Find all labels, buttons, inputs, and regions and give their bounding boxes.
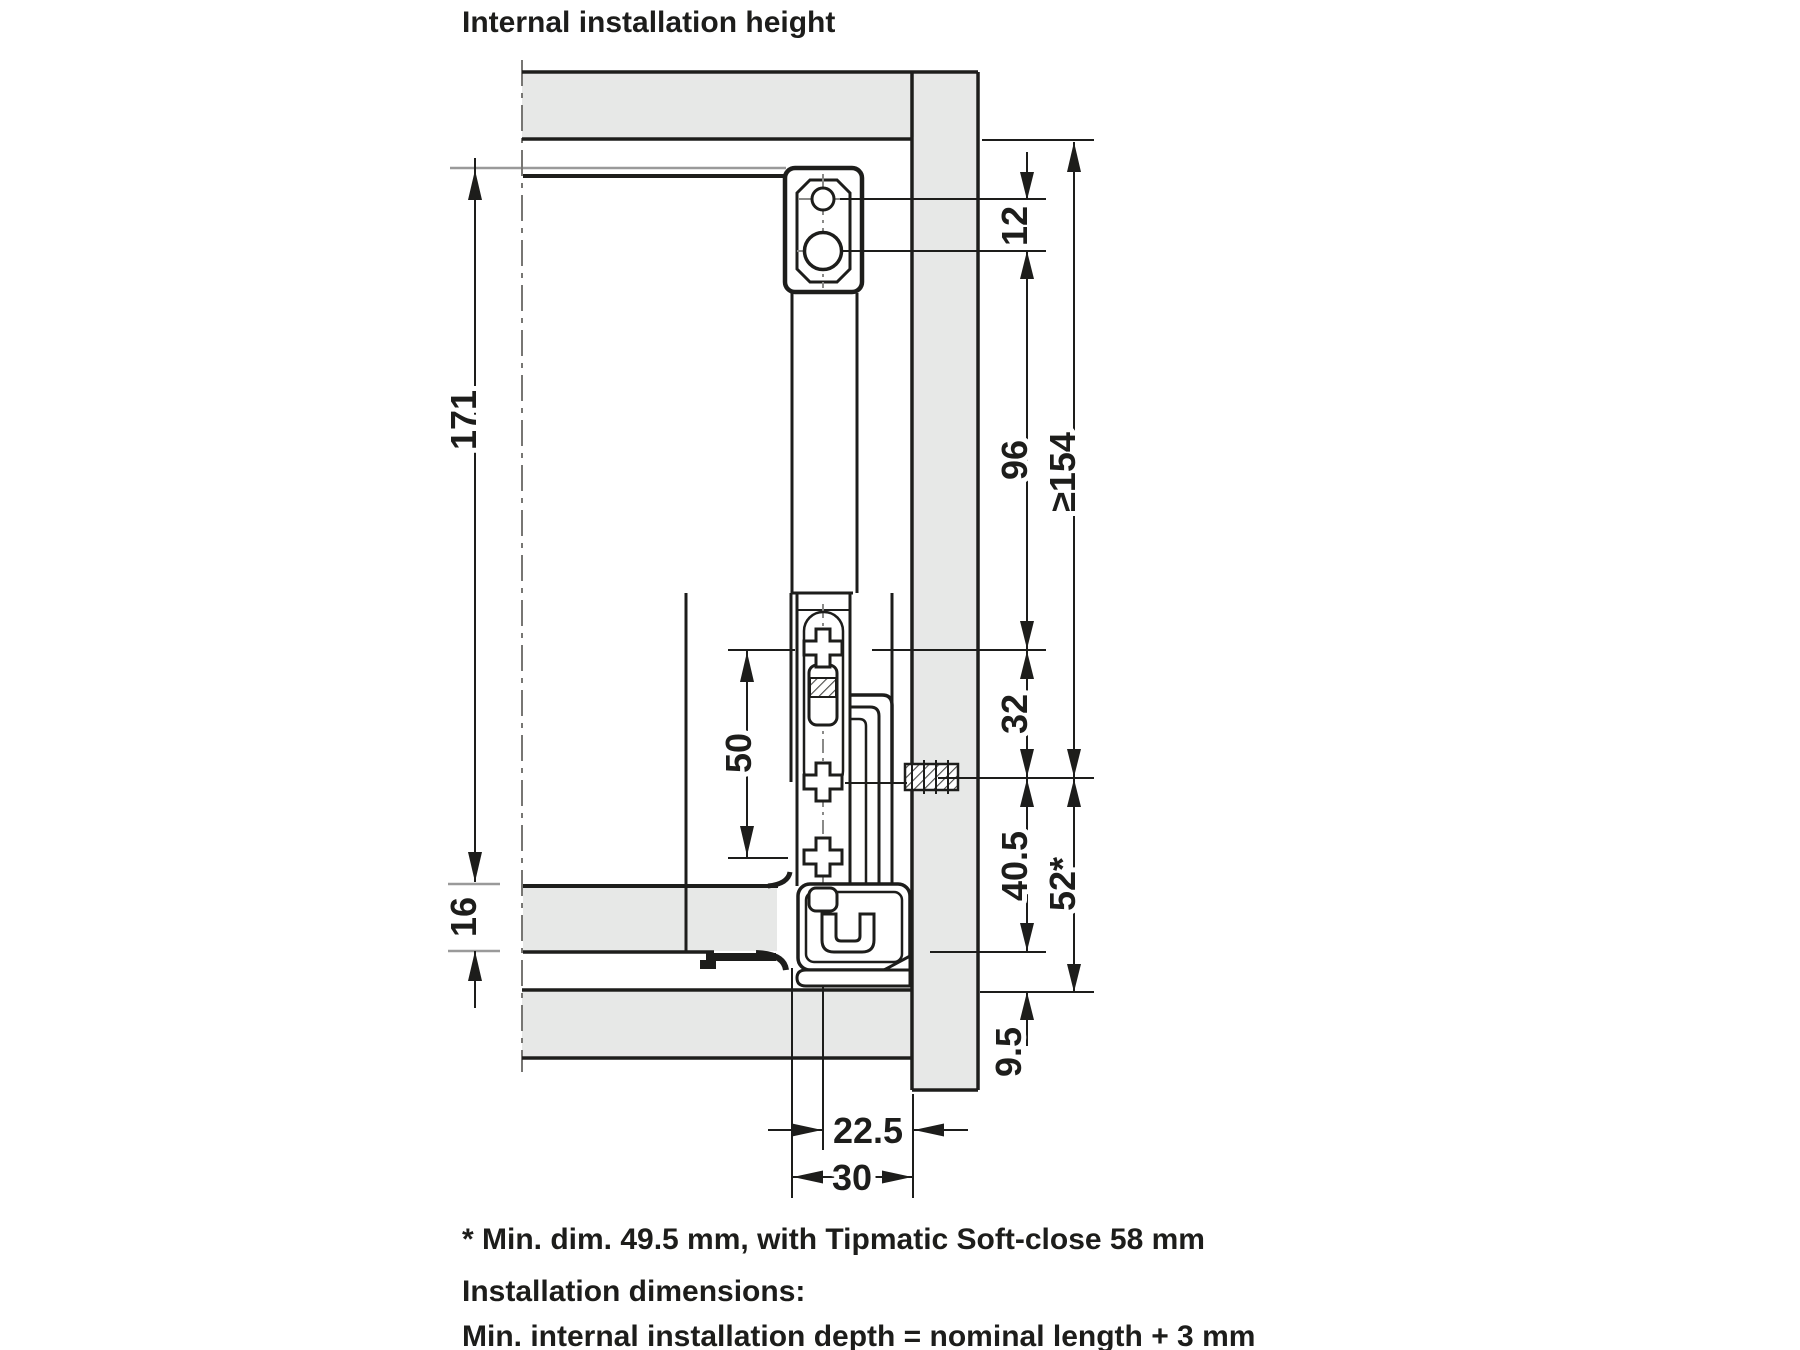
installation-drawing: Internal installation height	[0, 0, 1800, 1350]
cross-hole-bottom	[804, 838, 842, 876]
arrow-95-bottom	[1020, 992, 1034, 1020]
arrow-225-left	[792, 1124, 822, 1137]
drawer-bottom-panel	[523, 888, 777, 951]
drawer-section	[523, 176, 790, 970]
arrow-171-bottom	[468, 852, 482, 882]
dim-label-405: 40.5	[994, 831, 1035, 901]
dim-label-52: 52*	[1042, 857, 1083, 911]
arrow-171-top	[468, 170, 482, 200]
bracket-large-hole	[805, 233, 842, 270]
dim-label-16: 16	[443, 897, 484, 937]
cross-hole-top	[804, 629, 842, 667]
dimension-bottom: 22.5 30	[768, 1110, 968, 1198]
dim-label-96: 96	[994, 440, 1035, 480]
dim-label-32: 32	[994, 694, 1035, 734]
dimension-50: 50	[718, 651, 759, 857]
drawing-title: Internal installation height	[462, 6, 835, 39]
foot-small-hole	[809, 888, 837, 911]
dim-label-30: 30	[832, 1157, 872, 1198]
footnotes: * Min. dim. 49.5 mm, with Tipmatic Soft-…	[462, 1223, 1255, 1350]
top-fixing-bracket	[785, 168, 862, 292]
arrow-32-top	[1020, 651, 1034, 679]
arrow-52-bottom	[1067, 964, 1081, 992]
dim-label-12: 12	[994, 206, 1035, 246]
arrow-32-bottom	[1020, 749, 1034, 777]
footnote-installation-depth: Min. internal installation depth = nomin…	[462, 1320, 1255, 1350]
runner-front-lip	[706, 953, 776, 961]
catalog-diagram-page: Internal installation height	[0, 0, 1800, 1350]
footnote-min-dim: * Min. dim. 49.5 mm, with Tipmatic Soft-…	[462, 1223, 1205, 1256]
dimension-171-16: 171 16	[443, 158, 484, 1008]
dimension-column-b: ≥154 52*	[1042, 142, 1083, 992]
arrow-405-bottom	[1020, 923, 1034, 951]
drawer-bottom-rear-corner	[768, 872, 790, 886]
arrow-154-top	[1067, 142, 1081, 172]
dim-label-171: 171	[443, 390, 484, 450]
dim-label-50: 50	[718, 733, 759, 773]
dim-label-95: 9.5	[988, 1027, 1029, 1077]
arrow-12-top	[1020, 172, 1034, 200]
arrow-30-left	[793, 1171, 823, 1184]
dim-label-154: ≥154	[1042, 432, 1083, 512]
arrow-12-bottom	[1020, 251, 1034, 279]
foot-base-bar	[797, 970, 910, 986]
arrow-50-top	[740, 652, 754, 682]
cabinet-top-panel	[522, 74, 914, 137]
arrow-154-bottom	[1067, 749, 1081, 777]
runner-front-hook	[700, 960, 716, 969]
cabinet-back-panel	[914, 74, 976, 1088]
arrow-30-right	[882, 1171, 912, 1184]
arrow-50-bottom	[740, 826, 754, 856]
arrow-405-top	[1020, 779, 1034, 807]
arrow-52-top	[1067, 779, 1081, 807]
arrow-225-right	[914, 1124, 944, 1137]
cabinet-bottom-panel	[522, 992, 912, 1056]
upper-hook-inner	[851, 719, 866, 784]
dimension-column-a: 12 96 32 40.5 9.5	[988, 152, 1035, 1077]
bracket-small-hole	[812, 188, 834, 210]
dim-label-225: 22.5	[833, 1110, 903, 1151]
footnote-installation-heading: Installation dimensions:	[462, 1275, 805, 1308]
arrow-96-bottom	[1020, 621, 1034, 649]
arrow-16-bottom	[468, 951, 482, 981]
cross-hole-middle	[804, 763, 842, 801]
adjustment-slider	[810, 678, 836, 697]
rear-runner-bracket	[791, 293, 910, 986]
